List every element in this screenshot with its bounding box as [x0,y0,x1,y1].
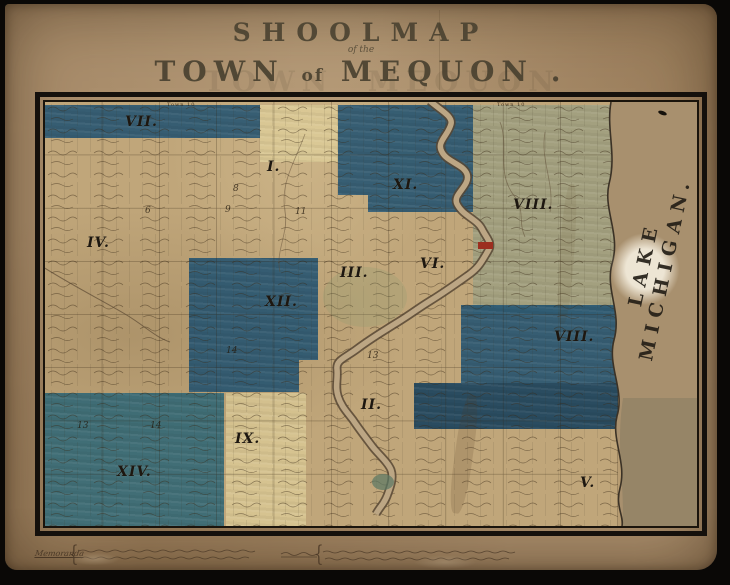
section-number: 9 [225,205,231,215]
district-label-vii: VII. [125,114,158,130]
script-line [81,557,249,559]
section-number: 6 [145,206,151,216]
map-title-block: SHOOLMAP of the TOWN MEQUON TOWN of MEQU… [5,18,717,88]
district-label-viii: VIII. [513,197,553,213]
legend-brace-right: { [314,541,324,568]
script-line [323,551,515,553]
section-number: 14 [226,346,237,356]
district-label-iv: IV. [87,235,110,251]
section-number: 13 [367,351,378,361]
district-label-ix: IX. [235,431,260,447]
map-linework [45,102,697,526]
map-paper: SHOOLMAP of the TOWN MEQUON TOWN of MEQU… [5,4,717,570]
district-label-iii: III. [340,265,369,281]
section-number: 13 [77,421,88,431]
township-annotation: Town 10 [497,102,525,108]
section-number: 11 [295,207,306,217]
map-frame-inner-line: Town 10 Town 10 VII. I. XI. VIII. IV. II… [43,100,699,528]
district-label-xiv: XIV. [117,464,152,480]
photograph-of-map: SHOOLMAP of the TOWN MEQUON TOWN of MEQU… [0,0,730,585]
village-red-mark [478,242,493,249]
district-label-xi: XI. [393,177,418,193]
map-title: SHOOLMAP [5,18,717,47]
legend-brace-left: { [69,541,79,568]
title-town-word: TOWN [154,55,284,88]
title-period: . [551,55,568,88]
map-interior: Town 10 Town 10 VII. I. XI. VIII. IV. II… [45,102,697,526]
pond [372,474,394,490]
legend-notes: Memoranda { { [5,544,717,570]
district-label-viii-2: VIII. [554,329,594,345]
map-frame-border: Town 10 Town 10 VII. I. XI. VIII. IV. II… [35,92,707,536]
legend-right-label-script [281,553,317,558]
district-label-ii: II. [361,397,382,413]
script-line [79,550,255,552]
paper-crease [439,10,440,90]
district-label-v: V. [580,475,595,491]
section-number: 8 [233,184,239,194]
map-subtitle-of-the: of the [5,45,717,55]
legend-script-lines [5,544,717,570]
township-annotation: Town 10 [167,102,195,108]
district-label-vi: VI. [420,256,445,272]
map-town-title: TOWN of MEQUON . [5,55,717,88]
district-label-xii: XII. [265,294,298,310]
script-line [325,558,509,560]
lake-shore-wash [620,398,697,526]
section-number: 14 [150,421,161,431]
district-label-i: I. [267,159,280,175]
title-mequon-word: MEQUON [341,55,534,88]
title-of-word: of [301,66,324,86]
